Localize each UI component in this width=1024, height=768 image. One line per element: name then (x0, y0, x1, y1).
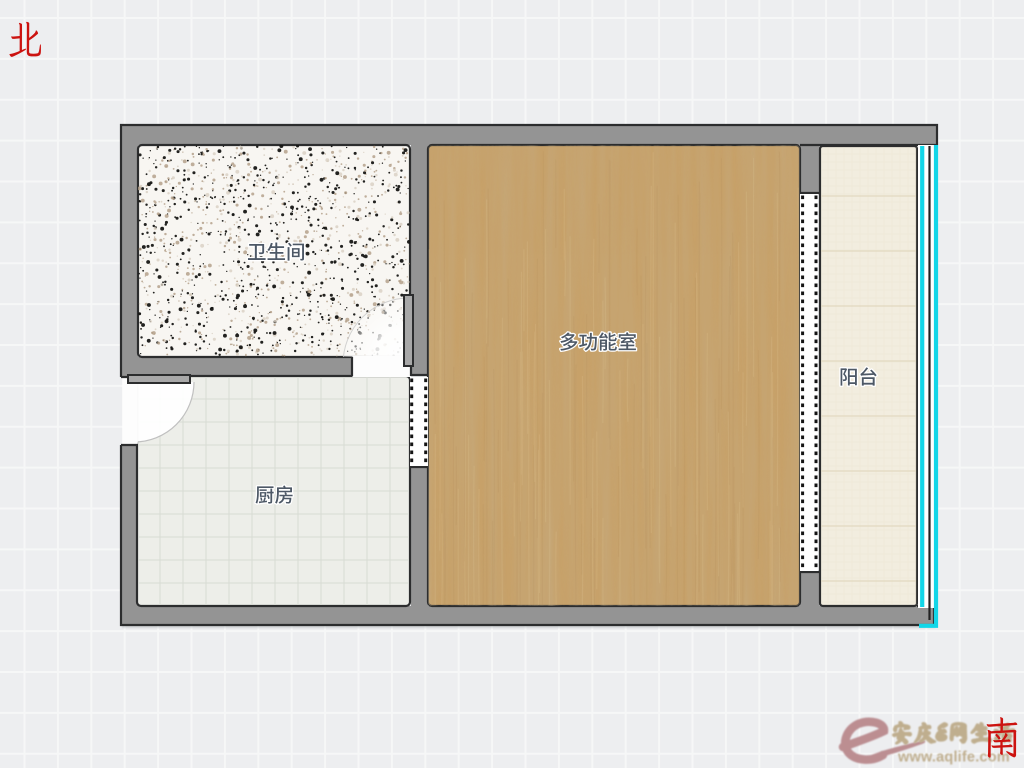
svg-text:www.aqlife.com: www.aqlife.com (897, 750, 1010, 766)
